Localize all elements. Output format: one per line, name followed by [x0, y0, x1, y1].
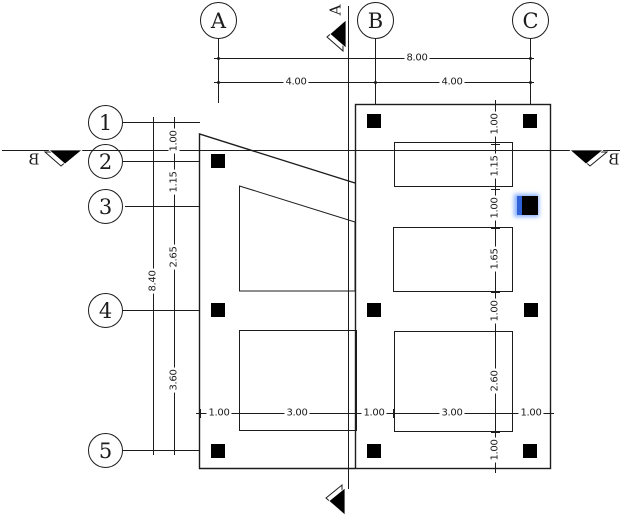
grid-bubble-label: 1 — [99, 111, 112, 135]
dim-tick — [491, 468, 500, 469]
dim-label-bottom-span-3: 1.00 — [361, 408, 386, 419]
column-marker[interactable] — [367, 303, 381, 317]
dim-tick — [491, 432, 500, 433]
grid-bubble-label: 3 — [99, 195, 112, 219]
grid-leader-col-c — [530, 38, 531, 104]
dim-tick — [170, 161, 179, 162]
column-marker[interactable] — [367, 114, 381, 128]
dim-tick — [491, 228, 500, 229]
dim-tick — [200, 409, 201, 418]
dim-label-right-span-6: 2.60 — [490, 368, 501, 393]
dim-tick — [149, 450, 158, 451]
dim-tick — [491, 104, 500, 105]
dim-tick — [170, 122, 179, 123]
dim-line-left-spans — [174, 117, 175, 455]
grid-bubble-row-5: 5 — [88, 433, 123, 468]
dim-tick — [356, 409, 357, 418]
dim-tick — [170, 450, 179, 451]
grid-bubble-label: 4 — [99, 299, 112, 323]
grid-leader-row-5 — [123, 450, 200, 451]
dim-label-right-span-5: 1.00 — [490, 298, 501, 323]
dim-label-left-span-2: 1.15 — [169, 169, 180, 194]
dim-node — [374, 81, 377, 84]
grid-bubble-row-4: 4 — [88, 293, 123, 328]
dim-tick — [491, 292, 500, 293]
dim-tick — [170, 310, 179, 311]
dim-tick — [393, 409, 394, 418]
column-marker[interactable] — [523, 444, 537, 458]
dim-label-bottom-span-4: 3.00 — [439, 408, 464, 419]
dim-label-top-span-2: 4.00 — [439, 77, 464, 88]
grid-leader-col-b — [375, 38, 376, 104]
dim-label-right-span-7: 1.00 — [490, 437, 501, 462]
grid-bubble-label: A — [211, 9, 226, 33]
column-marker[interactable] — [211, 154, 225, 168]
dim-tick — [512, 409, 513, 418]
grid-bubble-label: B — [368, 9, 383, 33]
dim-label-left-span-1: 1.00 — [169, 128, 180, 153]
dim-tick — [491, 331, 500, 332]
grid-bubble-label: 5 — [99, 439, 112, 463]
grid-bubble-col-b: B — [357, 2, 394, 39]
section-label-top: A — [329, 5, 344, 16]
dim-label-left-total: 8.40 — [148, 268, 159, 293]
section-label-left: B — [28, 153, 39, 168]
grid-leader-row-1 — [123, 122, 200, 123]
grid-leader-row-4 — [123, 310, 200, 311]
dim-label-right-span-2: 1.15 — [490, 153, 501, 178]
column-marker[interactable] — [524, 303, 538, 317]
dim-label-right-span-1: 1.00 — [490, 111, 501, 136]
grid-bubble-label: 2 — [99, 150, 112, 174]
dim-label-left-span-3: 2.65 — [169, 244, 180, 269]
dim-tick — [550, 409, 551, 418]
dim-node — [217, 81, 220, 84]
column-marker-selected[interactable] — [517, 196, 538, 215]
dim-label-left-span-4: 3.60 — [169, 367, 180, 392]
dim-node — [217, 57, 220, 60]
dim-line-top-total — [214, 58, 534, 59]
floor-plan-canvas: 8.00 4.00 4.00 8.40 1.00 1.15 2.65 3.60 … — [0, 0, 628, 519]
footing-left-top — [240, 186, 356, 291]
column-marker[interactable] — [523, 114, 537, 128]
dim-label-right-span-3: 1.00 — [490, 195, 501, 220]
dim-tick — [239, 409, 240, 418]
column-marker[interactable] — [211, 444, 225, 458]
dim-tick — [491, 144, 500, 145]
dim-node — [529, 81, 532, 84]
grid-leader-row-3 — [125, 206, 200, 207]
grid-leader-col-a — [218, 38, 219, 103]
section-label-right: B — [608, 153, 619, 168]
dim-tick — [170, 206, 179, 207]
dim-node — [529, 57, 532, 60]
dim-tick — [149, 122, 158, 123]
grid-bubble-col-c: C — [512, 2, 549, 39]
dim-label-bottom-span-2: 3.00 — [284, 408, 309, 419]
dim-label-top-total: 8.00 — [404, 53, 429, 64]
dim-tick — [491, 189, 500, 190]
column-marker[interactable] — [211, 303, 225, 317]
grid-bubble-row-3: 3 — [88, 189, 123, 224]
dim-label-bottom-span-1: 1.00 — [206, 408, 231, 419]
grid-bubble-row-1: 1 — [88, 105, 123, 140]
dim-label-right-span-4: 1.65 — [490, 246, 501, 271]
grid-bubble-col-a: A — [200, 2, 237, 39]
dim-label-top-span-1: 4.00 — [283, 77, 308, 88]
grid-bubble-label: C — [522, 9, 538, 33]
grid-bubble-row-2: 2 — [88, 144, 123, 179]
column-marker[interactable] — [367, 444, 381, 458]
grid-leader-row-2 — [123, 161, 200, 162]
dim-label-bottom-span-5: 1.00 — [518, 408, 543, 419]
